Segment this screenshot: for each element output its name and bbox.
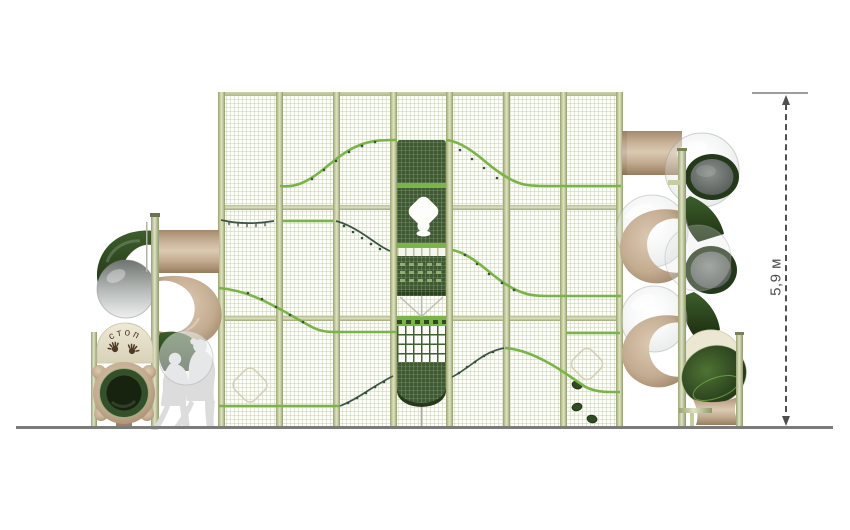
post-bracket bbox=[679, 408, 712, 413]
slide-clear-bubble bbox=[159, 331, 213, 385]
tube-end-cap bbox=[691, 159, 734, 195]
left-slide: стоп bbox=[91, 213, 222, 430]
support-post bbox=[736, 334, 743, 428]
right-slide bbox=[616, 131, 756, 428]
slide-bend-green bbox=[682, 292, 720, 336]
slide-tube-tan bbox=[153, 230, 219, 273]
dimension-line bbox=[785, 104, 787, 412]
post-bracket bbox=[668, 180, 680, 185]
slide-exit-tube bbox=[92, 362, 156, 428]
height-dimension-label: 5,9 м bbox=[768, 258, 785, 296]
dimension-arrow-down-icon bbox=[782, 416, 790, 426]
ground-line bbox=[16, 426, 833, 429]
playground-elevation-drawing: стоп bbox=[0, 0, 850, 530]
stop-sign-panel bbox=[97, 323, 153, 363]
dimension-extension-line bbox=[752, 92, 808, 94]
slide-assemblies: стоп bbox=[0, 0, 850, 530]
dimension-arrow-up-icon bbox=[782, 95, 790, 105]
